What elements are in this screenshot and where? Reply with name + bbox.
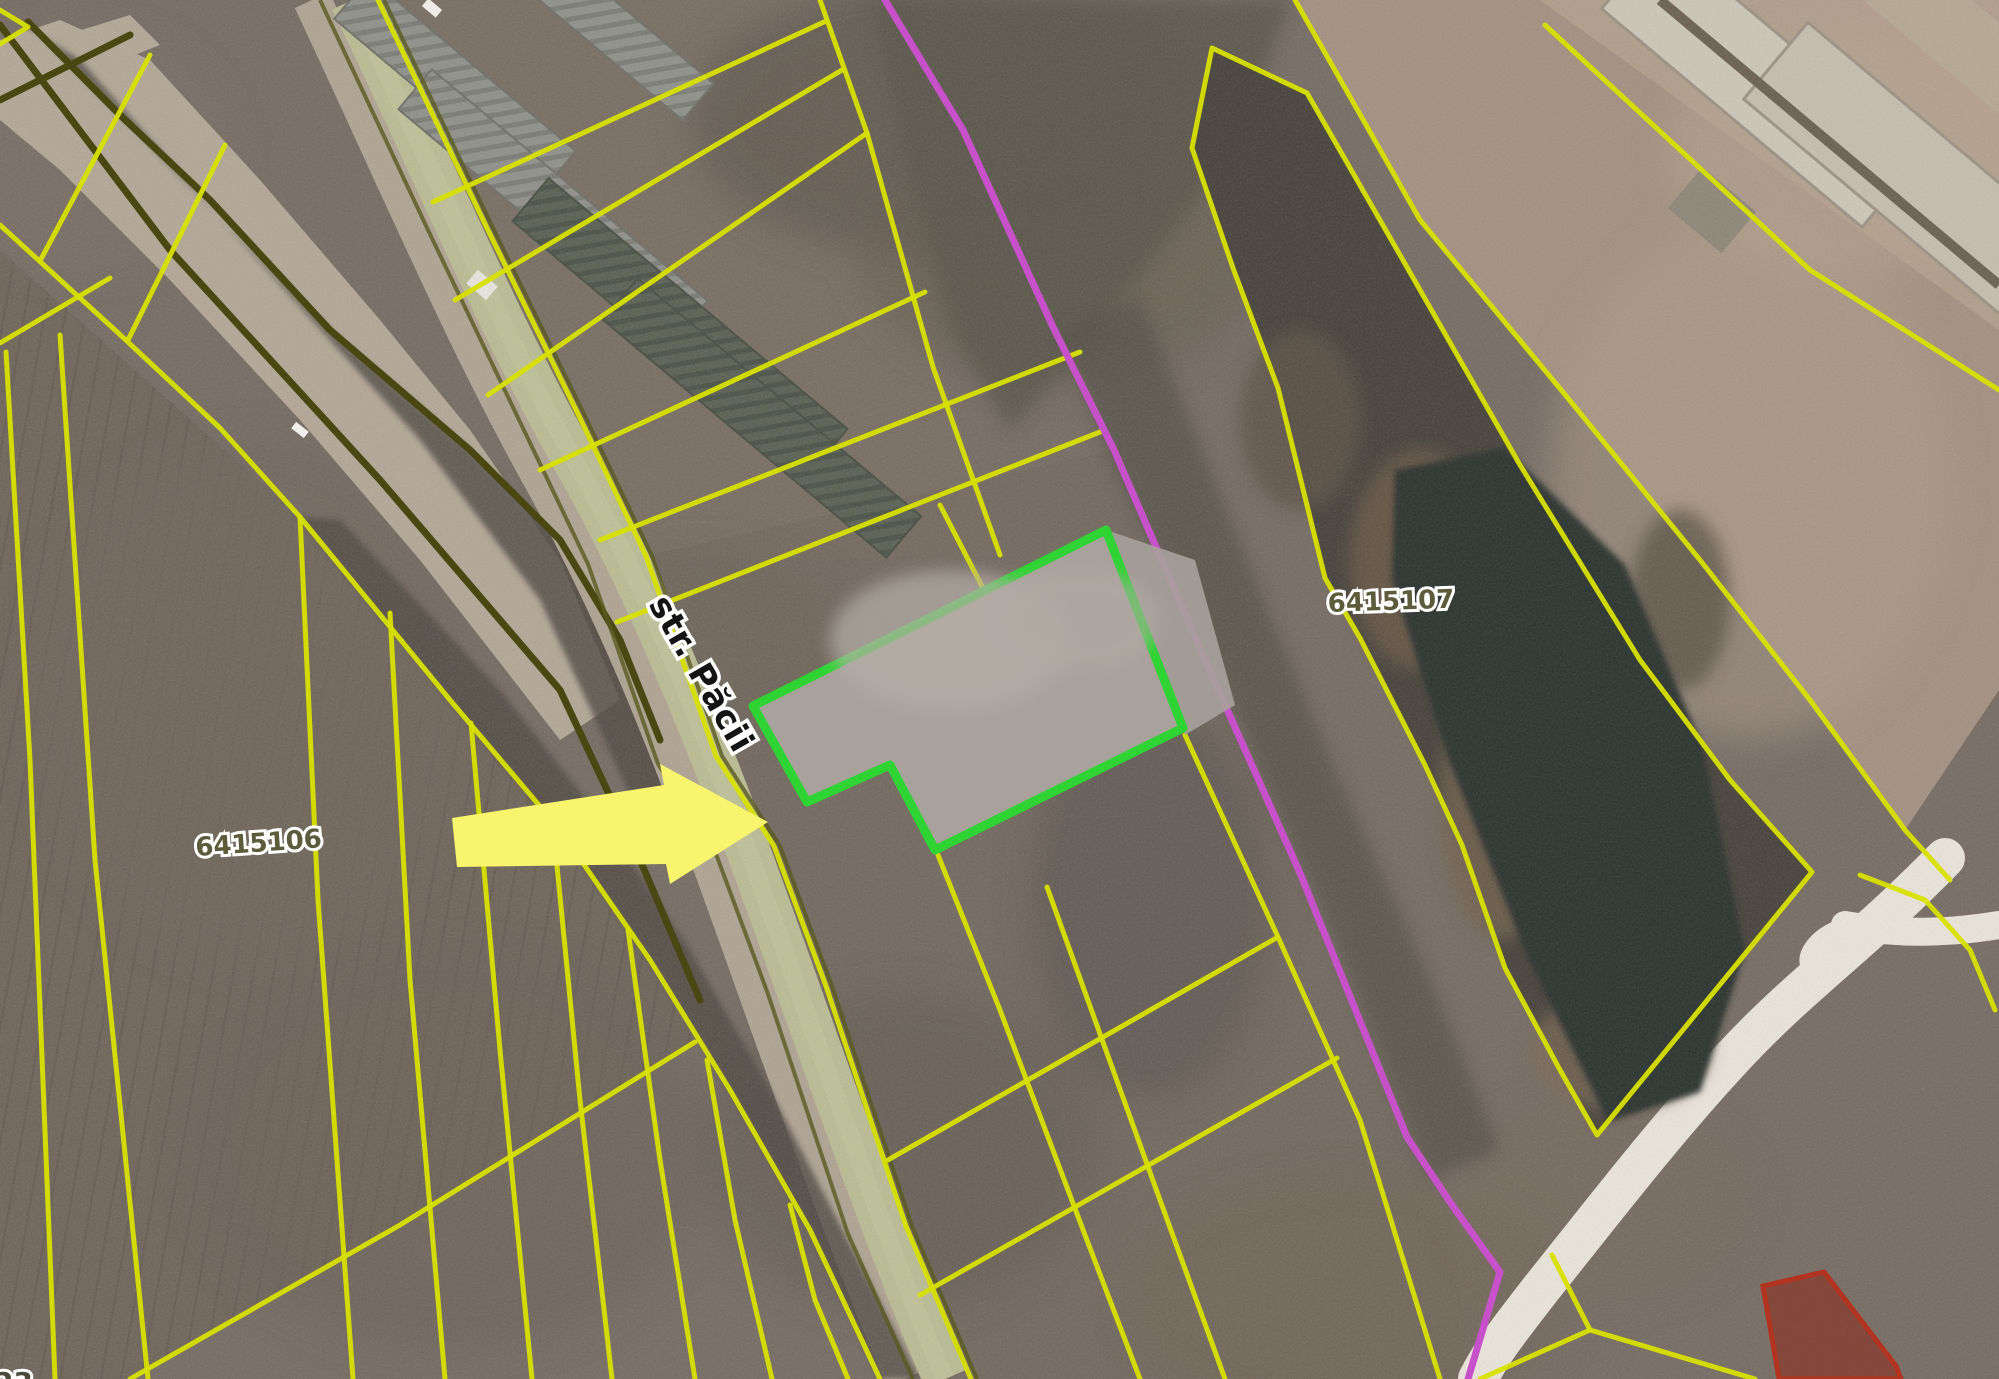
map-canvas[interactable]: 6415106 6415107 str. Păcii 23 [0,0,1999,1379]
partial-parcel-number: 23 [0,1366,33,1379]
parcel-number-6415107: 6415107 [1327,585,1455,619]
satellite-cadastral-map[interactable]: 6415106 6415107 str. Păcii 23 [0,0,1999,1379]
